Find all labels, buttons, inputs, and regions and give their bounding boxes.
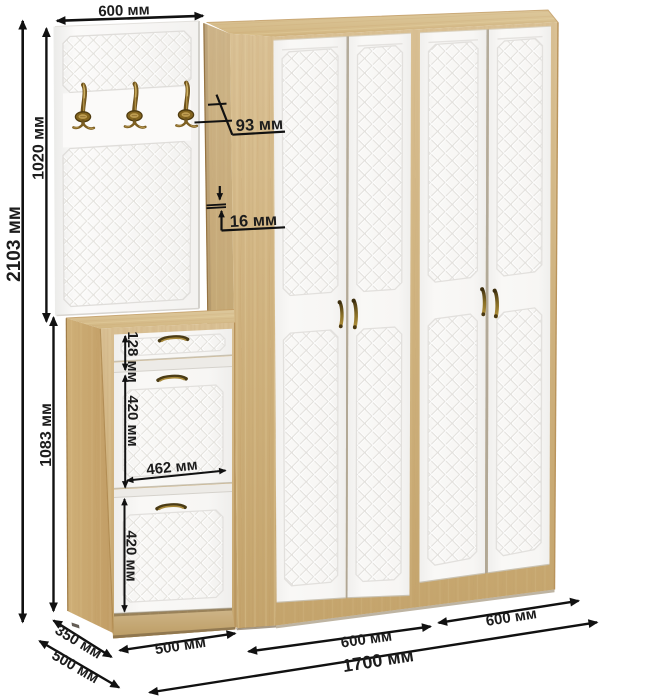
- svg-text:16 мм: 16 мм: [229, 211, 277, 231]
- svg-text:1020 мм: 1020 мм: [31, 116, 48, 180]
- svg-text:600 мм: 600 мм: [98, 1, 150, 20]
- svg-text:1083 мм: 1083 мм: [38, 403, 55, 467]
- svg-text:420 мм: 420 мм: [123, 530, 140, 581]
- svg-text:420 мм: 420 мм: [124, 395, 141, 446]
- svg-text:93 мм: 93 мм: [235, 115, 283, 135]
- svg-text:128 мм: 128 мм: [124, 331, 141, 382]
- svg-text:2103 мм: 2103 мм: [4, 206, 25, 282]
